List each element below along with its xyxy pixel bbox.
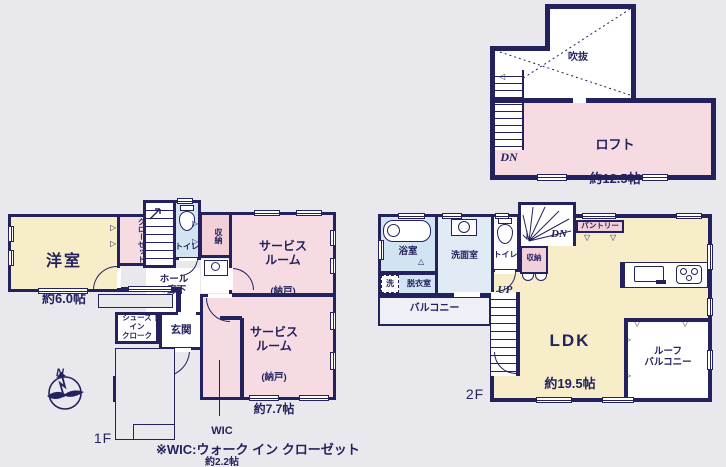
door-symbol-icon: ▷ (110, 224, 116, 232)
door-symbol-icon: ▽ (682, 320, 688, 328)
wall-segment (490, 46, 550, 51)
room-name: 洋室 (16, 253, 112, 272)
floor2-label: 2F (458, 386, 492, 403)
window (707, 350, 713, 370)
window (707, 298, 713, 316)
door-opening (495, 270, 515, 274)
compass-icon: N (42, 364, 88, 412)
outdoor-step (133, 424, 175, 440)
window (537, 174, 567, 181)
window (330, 258, 336, 274)
room-closet-label: クローゼット (121, 218, 145, 263)
window (398, 213, 425, 219)
wall-segment (545, 4, 550, 51)
roof-balcony-label: ルーフ バルコニー (628, 346, 708, 368)
door-symbol-icon: ▷ (625, 336, 631, 344)
window (38, 288, 88, 294)
stairs-arrow-icon (147, 204, 165, 222)
window (707, 244, 713, 270)
room-pantry-label: パントリー (576, 222, 624, 231)
loft-stairs-dn-label: DN (492, 150, 526, 164)
wall-segment (545, 4, 636, 9)
compass-north-label: N (56, 367, 65, 379)
room-name: LDK (520, 331, 620, 351)
wall-segment (220, 316, 242, 320)
wall-segment (631, 4, 636, 103)
door-symbol-icon: ▷ (625, 372, 631, 380)
outdoor-step (98, 294, 173, 308)
window (442, 213, 462, 219)
door-opening (454, 292, 480, 297)
window (299, 395, 329, 401)
wall-segment (219, 360, 220, 416)
window (602, 397, 634, 403)
door-opening (208, 294, 232, 298)
window (8, 226, 14, 242)
room-name: サービス ルーム (216, 325, 332, 353)
window (536, 397, 572, 403)
room-name: ロフト (550, 137, 680, 152)
wall-segment (240, 318, 244, 398)
door-symbol-icon: ▷ (110, 240, 116, 248)
door-opening (229, 268, 233, 290)
burner-icon (680, 268, 687, 275)
window (330, 352, 336, 370)
stairs-dn-label: DN (544, 228, 574, 241)
sink-bowl-icon (458, 221, 470, 233)
room-shoes-cloak-label: シューズ イン クローク (113, 314, 161, 341)
floorplan-canvas: 吹抜 ◁ DN ロフト 約12.5帖 洋室 約6.0帖 クローゼット UP トイ… (0, 0, 726, 467)
loft-stairs (495, 70, 524, 150)
door-symbol-icon: ▷ (155, 314, 161, 322)
room-storage-2f-label: 収納 (519, 254, 549, 263)
window (249, 395, 279, 401)
wall-segment (490, 175, 716, 180)
room-name: サービス ルーム (232, 239, 334, 267)
room-washroom-label: 洗面室 (438, 250, 491, 261)
faucet-icon (656, 280, 666, 284)
window (296, 210, 322, 216)
door-symbol-icon: ▽ (610, 234, 616, 242)
window (8, 250, 14, 266)
window (495, 213, 509, 219)
loft-room-label: ロフト 約12.5帖 (550, 118, 680, 205)
room-size: 約19.5帖 (520, 376, 620, 391)
window (582, 213, 616, 219)
window (676, 213, 702, 219)
window (378, 240, 384, 260)
room-dressing-label: 脱衣室 (400, 279, 438, 288)
door-opening (117, 268, 121, 288)
door-symbol-icon: ▷ (192, 238, 198, 246)
wall-segment (620, 262, 625, 288)
door-symbol-icon: ▷ (192, 220, 198, 228)
room-laundry-label: 洗 (381, 279, 399, 288)
first-floor-plan: 洋室 約6.0帖 クローゼット UP トイレ 収納 サービス ルーム (納戸) … (8, 198, 338, 450)
window (177, 198, 193, 204)
washbasin-bowl-icon (211, 262, 220, 271)
window (128, 286, 172, 292)
second-floor-plan: 浴室 洗 脱衣室 洗面室 トイレ DN 収納 パントリー ルーフ バルコニー (378, 202, 714, 404)
wall-segment (490, 46, 495, 180)
wall-segment (490, 98, 716, 103)
door-symbol-icon: △ (418, 258, 424, 266)
loft-plan: 吹抜 ◁ DN ロフト 約12.5帖 (490, 4, 716, 180)
void-label: 吹抜 (556, 52, 600, 64)
room-bath-label: 浴室 (384, 246, 432, 257)
room-wic-label: WIC 約2.2帖 (194, 406, 250, 467)
wall-segment (176, 287, 181, 314)
room-size: 約2.2帖 (194, 457, 250, 467)
room-entrance-label: 玄関 (161, 324, 201, 336)
ldk-label: LDK 約19.5帖 (520, 312, 620, 410)
door-symbol-icon: ▽ (634, 320, 640, 328)
room-name: WIC (194, 425, 250, 438)
burner-icon (686, 275, 692, 281)
window (330, 312, 336, 330)
window (642, 174, 668, 181)
bathtub-drain-icon (387, 224, 400, 237)
window (330, 230, 336, 246)
room-storage-1f-label: 収納 (207, 218, 223, 254)
wic-footnote: ※WIC:ウォーク イン クローゼット (156, 442, 486, 457)
stair-direction-icon: ◁ (499, 73, 505, 81)
door-opening (573, 98, 586, 103)
room-annex: (納戸) (216, 372, 332, 383)
burner-icon (691, 268, 698, 275)
balcony-label: バルコニー (382, 303, 487, 315)
wall-segment (711, 98, 716, 180)
door-opening (179, 258, 197, 261)
door-opening (178, 312, 196, 315)
window (254, 210, 280, 216)
room-toilet-2f-label: トイレ (489, 250, 522, 259)
door-symbol-icon: ▽ (584, 234, 590, 242)
